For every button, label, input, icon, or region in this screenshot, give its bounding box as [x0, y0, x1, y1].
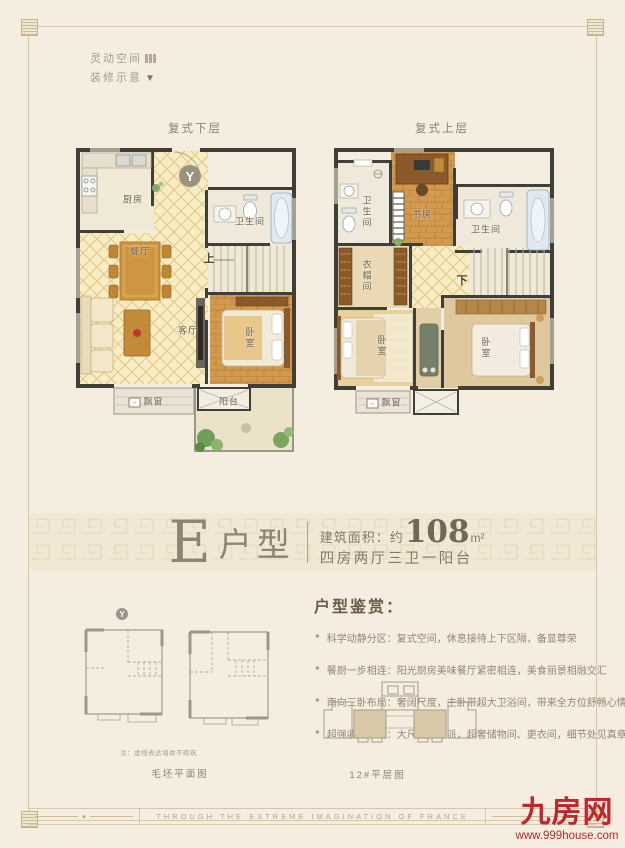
upper-plan-title: 复式上层 [415, 120, 469, 136]
grid-icon [145, 54, 156, 63]
room-label-balcony: 阳台 [219, 395, 239, 408]
band-divider [307, 521, 308, 563]
logo-url: www.999house.com [512, 830, 622, 842]
bullet-star-icon: ✦ [314, 728, 321, 737]
corner-ornament [587, 19, 604, 36]
compass-icon: Y [179, 165, 201, 187]
room-label-bath2: 卫生间 [471, 223, 501, 236]
bullet-text: 科学动静分区：复式空间，休息接待上下区隔，备显尊荣 [327, 630, 577, 645]
room-label-bed1: 卧室 [376, 335, 389, 357]
plan-note: 注：虚线表达墙体不砌筑 [120, 747, 280, 757]
unit-type-label: 户型 [219, 518, 295, 566]
bare-shell-plans: Y [78, 602, 278, 732]
appreciation-heading: 户型鉴赏： [314, 593, 600, 617]
bay-label-text: 飘窗 [381, 398, 401, 408]
area-unit: m² [471, 532, 485, 545]
appreciation-item: ✦餐厨一步相连：阳光厨房美味餐厅紧密相连，美食丽景相融交汇 [314, 662, 600, 677]
lower-plan-drawing: Y [76, 148, 296, 460]
room-label-closet: 衣帽间 [361, 260, 374, 293]
bay-label-text: 飘窗 [143, 397, 163, 407]
room-label-bay-upper: →飘窗 [366, 396, 401, 409]
key-plan-drawing [322, 680, 478, 748]
svg-text:Y: Y [119, 610, 125, 619]
footer-band: ◆ THROUGH THE EXTREME IMAGINATION OF FRA… [29, 808, 596, 825]
room-label-bedroom: 卧室 [244, 327, 257, 349]
unit-letter: E [168, 513, 210, 571]
appreciation-item: ✦科学动静分区：复式空间，休息接待上下区隔，备显尊荣 [314, 630, 600, 645]
decor-note: 灵动空间 装修示意▼ [90, 50, 157, 88]
stairs-down-label: 下 [457, 272, 468, 288]
corner-ornament [21, 19, 38, 36]
area-value: 108 [405, 515, 470, 549]
decor-note-line1: 灵动空间 [90, 53, 142, 65]
room-label-bath: 卫生间 [235, 215, 265, 228]
room-label-living: 客厅 [178, 324, 198, 337]
bare-shell-plan-drawing: Y [78, 602, 278, 732]
room-label-study: 书房 [412, 208, 432, 221]
room-label-bay: →飘窗 [128, 395, 163, 408]
bullet-text: 餐厨一步相连：阳光厨房美味餐厅紧密相连，美食丽景相融交汇 [327, 662, 607, 677]
unit-specs: 建筑面积：约 108 m² 四房两厅三卫一阳台 [320, 515, 485, 568]
footer-band-left-ornament: ◆ [29, 809, 139, 824]
room-label-bed2: 卧室 [480, 337, 493, 359]
bullet-star-icon: ✦ [314, 664, 321, 673]
svg-text:Y: Y [186, 169, 195, 184]
stairs-up-label: 上 [204, 250, 215, 266]
footer-slogan: THROUGH THE EXTREME IMAGINATION OF FRANC… [139, 809, 486, 824]
bay-window-arrow-icon: → [366, 399, 378, 409]
dropdown-triangle-icon: ▼ [145, 73, 157, 84]
room-label-dining: 餐厅 [130, 245, 150, 258]
bullet-star-icon: ✦ [314, 696, 321, 705]
bullet-star-icon: ✦ [314, 632, 321, 641]
title-band: E 户型 建筑面积：约 108 m² 四房两厅三卫一阳台 [29, 513, 596, 570]
logo-text: 九房网 [512, 798, 622, 828]
decor-note-line2: 装修示意 [90, 72, 142, 84]
key-plan-caption: 12#平层图 [330, 767, 425, 781]
bare-shell-caption: 毛坯平面图 [118, 766, 242, 780]
area-prefix: 建筑面积：约 [320, 531, 404, 545]
diamond-icon: ◆ [82, 814, 86, 820]
layout-description: 四房两厅三卫一阳台 [320, 552, 485, 568]
upper-floor-plan: 卫生间 书房 卫生间 衣帽间 下 卧室 卧室 →飘窗 [334, 148, 554, 418]
building-key-plan [322, 680, 478, 748]
mini-compass-icon: Y [116, 608, 128, 620]
site-logo: 九房网 www.999house.com [512, 798, 622, 842]
bay-window-arrow-icon: → [128, 398, 140, 408]
room-label-bath1: 卫生间 [361, 196, 374, 229]
lower-floor-plan: Y 厨房 卫生间 餐厅 上 客厅 卧室 →飘窗 阳台 [76, 148, 296, 460]
lower-plan-title: 复式下层 [168, 120, 222, 136]
room-label-kitchen: 厨房 [123, 193, 143, 206]
flyer-page: 灵动空间 装修示意▼ 复式下层 复式上层 [0, 0, 625, 848]
